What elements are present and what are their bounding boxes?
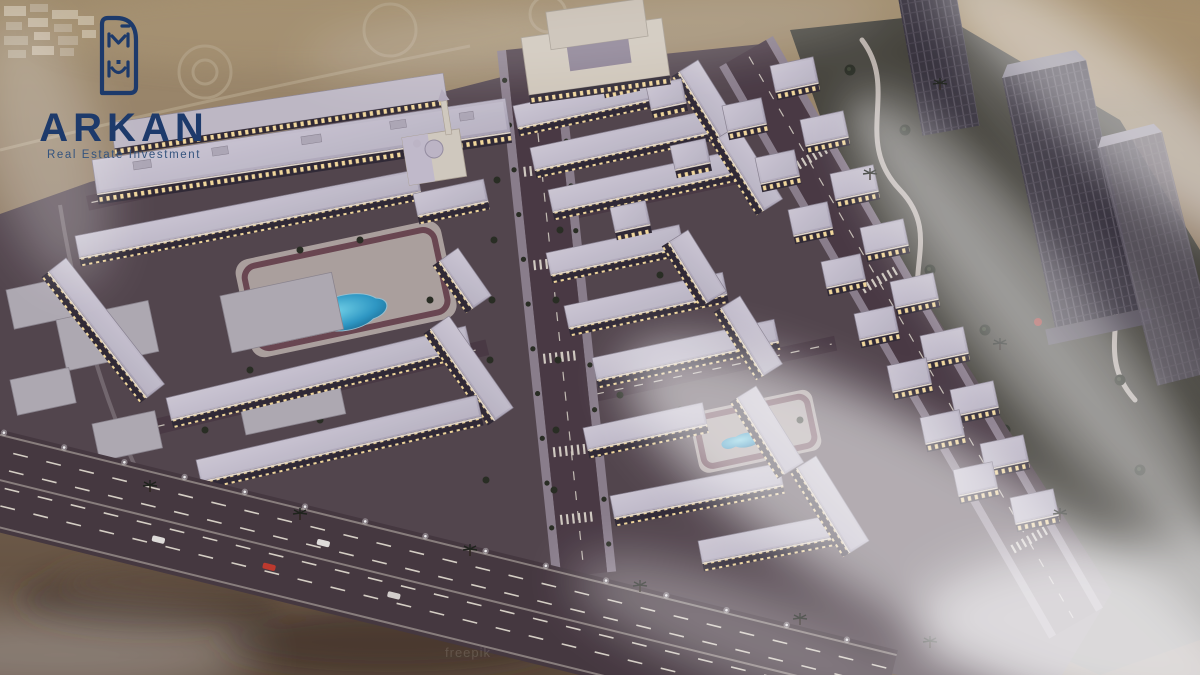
- brand-name: ARKAN: [39, 106, 208, 150]
- dusk-tint: [0, 0, 1200, 675]
- screenshot-root: freepik ARK: [0, 0, 1200, 675]
- scene-render: freepik ARK: [0, 0, 1200, 675]
- brand-tagline: Real Estate Investment: [47, 149, 201, 161]
